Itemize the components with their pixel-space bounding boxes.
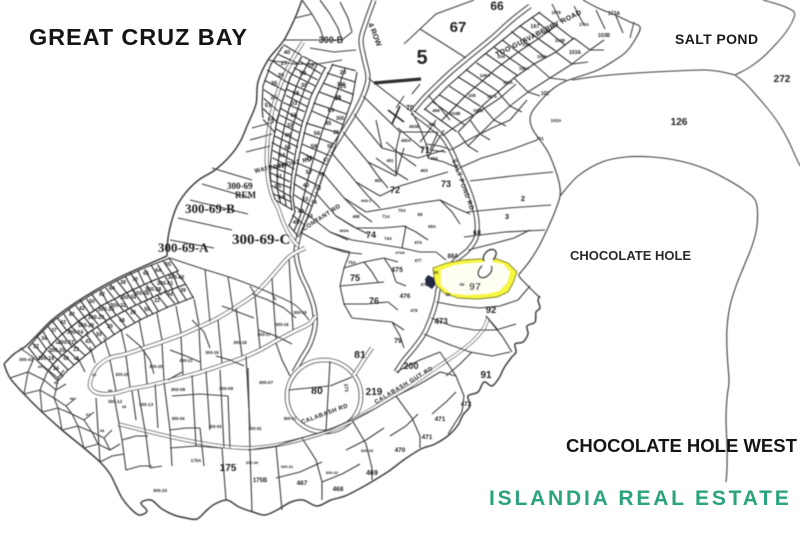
svg-text:471: 471 [435, 416, 446, 423]
svg-text:53: 53 [307, 214, 313, 220]
svg-text:103B: 103B [598, 33, 610, 39]
svg-text:45: 45 [285, 133, 292, 139]
svg-text:28: 28 [130, 310, 136, 316]
svg-text:300-34: 300-34 [120, 295, 136, 301]
svg-text:42: 42 [79, 306, 85, 312]
svg-text:39: 39 [180, 288, 186, 294]
svg-text:477: 477 [415, 258, 423, 263]
svg-text:300-16: 300-16 [275, 322, 289, 327]
svg-text:58: 58 [311, 144, 318, 150]
svg-text:REM: REM [235, 190, 257, 200]
svg-text:79: 79 [394, 338, 402, 345]
svg-text:75A: 75A [348, 260, 356, 265]
svg-text:108A: 108A [480, 73, 492, 78]
svg-text:64: 64 [155, 268, 161, 274]
svg-text:200: 200 [403, 361, 418, 371]
svg-text:106A: 106A [503, 80, 513, 85]
svg-text:33: 33 [291, 101, 298, 107]
svg-text:55: 55 [165, 262, 171, 268]
svg-text:67: 67 [450, 19, 467, 36]
svg-text:470: 470 [395, 447, 406, 454]
svg-text:462: 462 [375, 178, 383, 183]
svg-text:46: 46 [70, 396, 75, 401]
svg-text:51: 51 [265, 103, 272, 109]
svg-text:70: 70 [132, 277, 138, 283]
svg-text:300-20: 300-20 [49, 348, 65, 354]
svg-text:SALT POND: SALT POND [675, 31, 758, 47]
svg-text:23: 23 [340, 70, 347, 76]
svg-text:468: 468 [353, 214, 361, 219]
svg-text:68: 68 [291, 113, 298, 119]
svg-text:57: 57 [323, 158, 329, 164]
svg-text:GREAT CRUZ BAY: GREAT CRUZ BAY [29, 24, 248, 50]
svg-text:300-18: 300-18 [233, 340, 247, 345]
svg-text:175: 175 [220, 463, 237, 474]
svg-text:463: 463 [420, 168, 428, 173]
svg-text:461: 461 [387, 158, 395, 163]
svg-text:58: 58 [327, 144, 333, 150]
svg-text:39: 39 [278, 73, 285, 79]
svg-text:61: 61 [285, 145, 292, 151]
svg-text:57: 57 [306, 170, 312, 176]
svg-text:474: 474 [414, 240, 422, 245]
svg-text:468-1: 468-1 [361, 198, 372, 203]
svg-text:300-69-A: 300-69-A [158, 240, 209, 255]
svg-text:465: 465 [428, 122, 436, 127]
svg-text:300-69-B: 300-69-B [185, 201, 235, 216]
svg-text:103A: 103A [569, 50, 581, 56]
svg-text:3: 3 [505, 212, 509, 221]
svg-text:58: 58 [293, 91, 300, 97]
svg-text:66: 66 [490, 0, 504, 13]
svg-text:473: 473 [434, 317, 448, 326]
svg-text:102: 102 [541, 91, 550, 97]
svg-text:95: 95 [434, 270, 439, 275]
svg-text:ISLANDIA REAL ESTATE: ISLANDIA REAL ESTATE [489, 487, 792, 510]
svg-text:4638: 4638 [409, 124, 420, 129]
svg-text:460A: 460A [401, 138, 411, 143]
svg-text:24: 24 [53, 366, 59, 372]
svg-text:70A: 70A [398, 208, 406, 213]
svg-text:47: 47 [86, 412, 91, 417]
svg-text:103B: 103B [555, 38, 565, 43]
svg-text:74: 74 [366, 230, 376, 240]
svg-text:5: 5 [416, 47, 427, 69]
svg-text:41: 41 [276, 174, 283, 180]
svg-text:300-25: 300-25 [115, 372, 129, 377]
svg-text:22: 22 [154, 298, 160, 304]
svg-text:73: 73 [441, 179, 451, 189]
svg-text:32: 32 [33, 344, 39, 350]
svg-text:272: 272 [774, 74, 791, 85]
svg-text:175B: 175B [253, 478, 268, 484]
svg-text:53: 53 [279, 153, 286, 159]
svg-text:104A: 104A [537, 54, 547, 59]
svg-text:50: 50 [300, 71, 306, 77]
svg-text:CHOCOLATE HOLE: CHOCOLATE HOLE [570, 248, 691, 263]
svg-text:CHOCOLATE HOLE WEST: CHOCOLATE HOLE WEST [566, 435, 798, 456]
svg-text:173A: 173A [608, 11, 620, 17]
svg-text:64: 64 [109, 286, 115, 292]
svg-text:37: 37 [51, 328, 57, 334]
svg-text:300-19: 300-19 [205, 350, 219, 355]
svg-text:300-24: 300-24 [67, 330, 83, 336]
svg-text:300-07: 300-07 [259, 380, 274, 385]
svg-text:40: 40 [92, 372, 97, 377]
svg-text:104B: 104B [450, 111, 462, 116]
svg-text:42: 42 [56, 340, 61, 345]
svg-text:55: 55 [144, 307, 150, 313]
svg-text:300-17: 300-17 [257, 332, 271, 337]
svg-text:54: 54 [167, 292, 173, 298]
svg-text:2: 2 [521, 194, 525, 203]
svg-text:56: 56 [319, 172, 325, 178]
svg-text:466: 466 [432, 108, 440, 113]
svg-text:40: 40 [303, 183, 309, 189]
svg-text:300-28: 300-28 [88, 315, 104, 321]
svg-text:467: 467 [297, 480, 308, 487]
svg-text:471: 471 [422, 434, 433, 441]
svg-text:81: 81 [354, 349, 366, 361]
svg-text:300-26: 300-26 [78, 323, 94, 329]
svg-text:76: 76 [369, 296, 379, 306]
svg-text:69A: 69A [428, 224, 436, 229]
svg-text:97: 97 [469, 281, 481, 293]
svg-text:55: 55 [275, 184, 282, 190]
svg-text:300-30: 300-30 [246, 460, 259, 465]
svg-text:41: 41 [74, 356, 79, 361]
svg-text:472: 472 [461, 401, 472, 408]
svg-text:50: 50 [63, 356, 69, 362]
svg-text:96: 96 [459, 282, 465, 287]
svg-text:56: 56 [314, 131, 321, 137]
svg-text:126: 126 [671, 117, 688, 128]
svg-text:300-22: 300-22 [58, 340, 74, 346]
svg-text:41: 41 [85, 339, 91, 345]
svg-text:479: 479 [411, 308, 419, 313]
svg-text:62: 62 [99, 292, 105, 298]
svg-text:45: 45 [293, 220, 300, 226]
svg-text:105: 105 [468, 93, 476, 98]
svg-text:55: 55 [315, 186, 321, 192]
svg-text:464: 464 [430, 156, 438, 161]
svg-text:469A: 469A [339, 228, 349, 233]
svg-text:35: 35 [271, 81, 278, 87]
svg-text:1078: 1078 [551, 10, 561, 15]
svg-text:75: 75 [350, 273, 360, 283]
svg-text:105A: 105A [519, 66, 529, 71]
svg-text:300-32: 300-32 [326, 470, 339, 475]
svg-text:63: 63 [328, 108, 335, 114]
svg-text:300-03: 300-03 [208, 424, 222, 429]
svg-text:102A: 102A [551, 118, 563, 123]
svg-text:300-01: 300-01 [283, 416, 297, 421]
svg-text:70: 70 [406, 105, 414, 112]
svg-text:44: 44 [38, 364, 43, 369]
svg-text:478: 478 [421, 282, 429, 287]
svg-text:108B: 108B [473, 108, 483, 113]
svg-text:71A: 71A [382, 214, 390, 219]
svg-text:38: 38 [122, 404, 127, 409]
svg-text:42: 42 [60, 320, 66, 326]
svg-text:33: 33 [302, 197, 309, 203]
svg-text:30: 30 [301, 83, 307, 89]
svg-text:300-23: 300-23 [153, 488, 168, 493]
svg-text:300-30: 300-30 [98, 307, 114, 313]
svg-text:48: 48 [100, 428, 105, 433]
svg-text:50: 50 [96, 332, 102, 338]
svg-text:38: 38 [120, 280, 126, 286]
svg-text:39: 39 [108, 388, 113, 393]
svg-text:34: 34 [278, 195, 285, 201]
svg-text:91: 91 [480, 370, 492, 381]
svg-text:469: 469 [366, 470, 378, 477]
svg-text:68: 68 [119, 318, 125, 324]
svg-text:28: 28 [335, 95, 341, 101]
svg-text:300-69-C: 300-69-C [232, 232, 290, 248]
svg-text:68: 68 [473, 230, 481, 237]
svg-text:32: 32 [287, 123, 293, 129]
svg-text:25: 25 [271, 95, 278, 101]
svg-text:65: 65 [143, 271, 149, 277]
svg-text:468: 468 [333, 486, 344, 493]
svg-text:88: 88 [445, 292, 451, 297]
svg-text:54: 54 [311, 200, 317, 206]
svg-text:173A: 173A [579, 22, 589, 27]
svg-text:40: 40 [298, 209, 304, 215]
svg-text:28: 28 [333, 130, 339, 136]
svg-text:101: 101 [536, 136, 544, 141]
svg-text:20: 20 [107, 324, 113, 330]
svg-text:476: 476 [400, 293, 411, 300]
svg-text:72: 72 [390, 185, 400, 195]
svg-text:50: 50 [89, 299, 95, 305]
svg-text:300: 300 [336, 116, 345, 122]
svg-text:474A: 474A [395, 250, 405, 255]
svg-text:80: 80 [311, 385, 323, 397]
svg-text:40: 40 [284, 50, 290, 56]
svg-text:300-15: 300-15 [293, 310, 307, 315]
svg-text:300-02: 300-02 [248, 426, 262, 431]
svg-text:167: 167 [530, 24, 539, 30]
svg-text:175A: 175A [191, 458, 203, 463]
svg-text:300-08: 300-08 [171, 387, 186, 392]
svg-text:74A: 74A [384, 236, 392, 241]
svg-text:34: 34 [41, 336, 47, 342]
svg-text:475: 475 [391, 267, 403, 274]
svg-text:45: 45 [325, 121, 332, 127]
svg-text:300: 300 [337, 82, 346, 88]
svg-text:69: 69 [417, 212, 423, 217]
svg-text:107A: 107A [487, 94, 497, 99]
svg-text:45: 45 [54, 380, 59, 385]
svg-text:300-43: 300-43 [19, 357, 34, 362]
svg-text:300-18: 300-18 [38, 356, 54, 362]
svg-text:92: 92 [486, 305, 497, 316]
svg-text:300-04: 300-04 [171, 416, 185, 421]
svg-text:23: 23 [73, 347, 79, 353]
svg-text:88A: 88A [447, 254, 459, 260]
svg-text:67: 67 [69, 312, 75, 318]
svg-text:71: 71 [420, 145, 430, 155]
svg-text:300-31: 300-31 [281, 464, 294, 469]
